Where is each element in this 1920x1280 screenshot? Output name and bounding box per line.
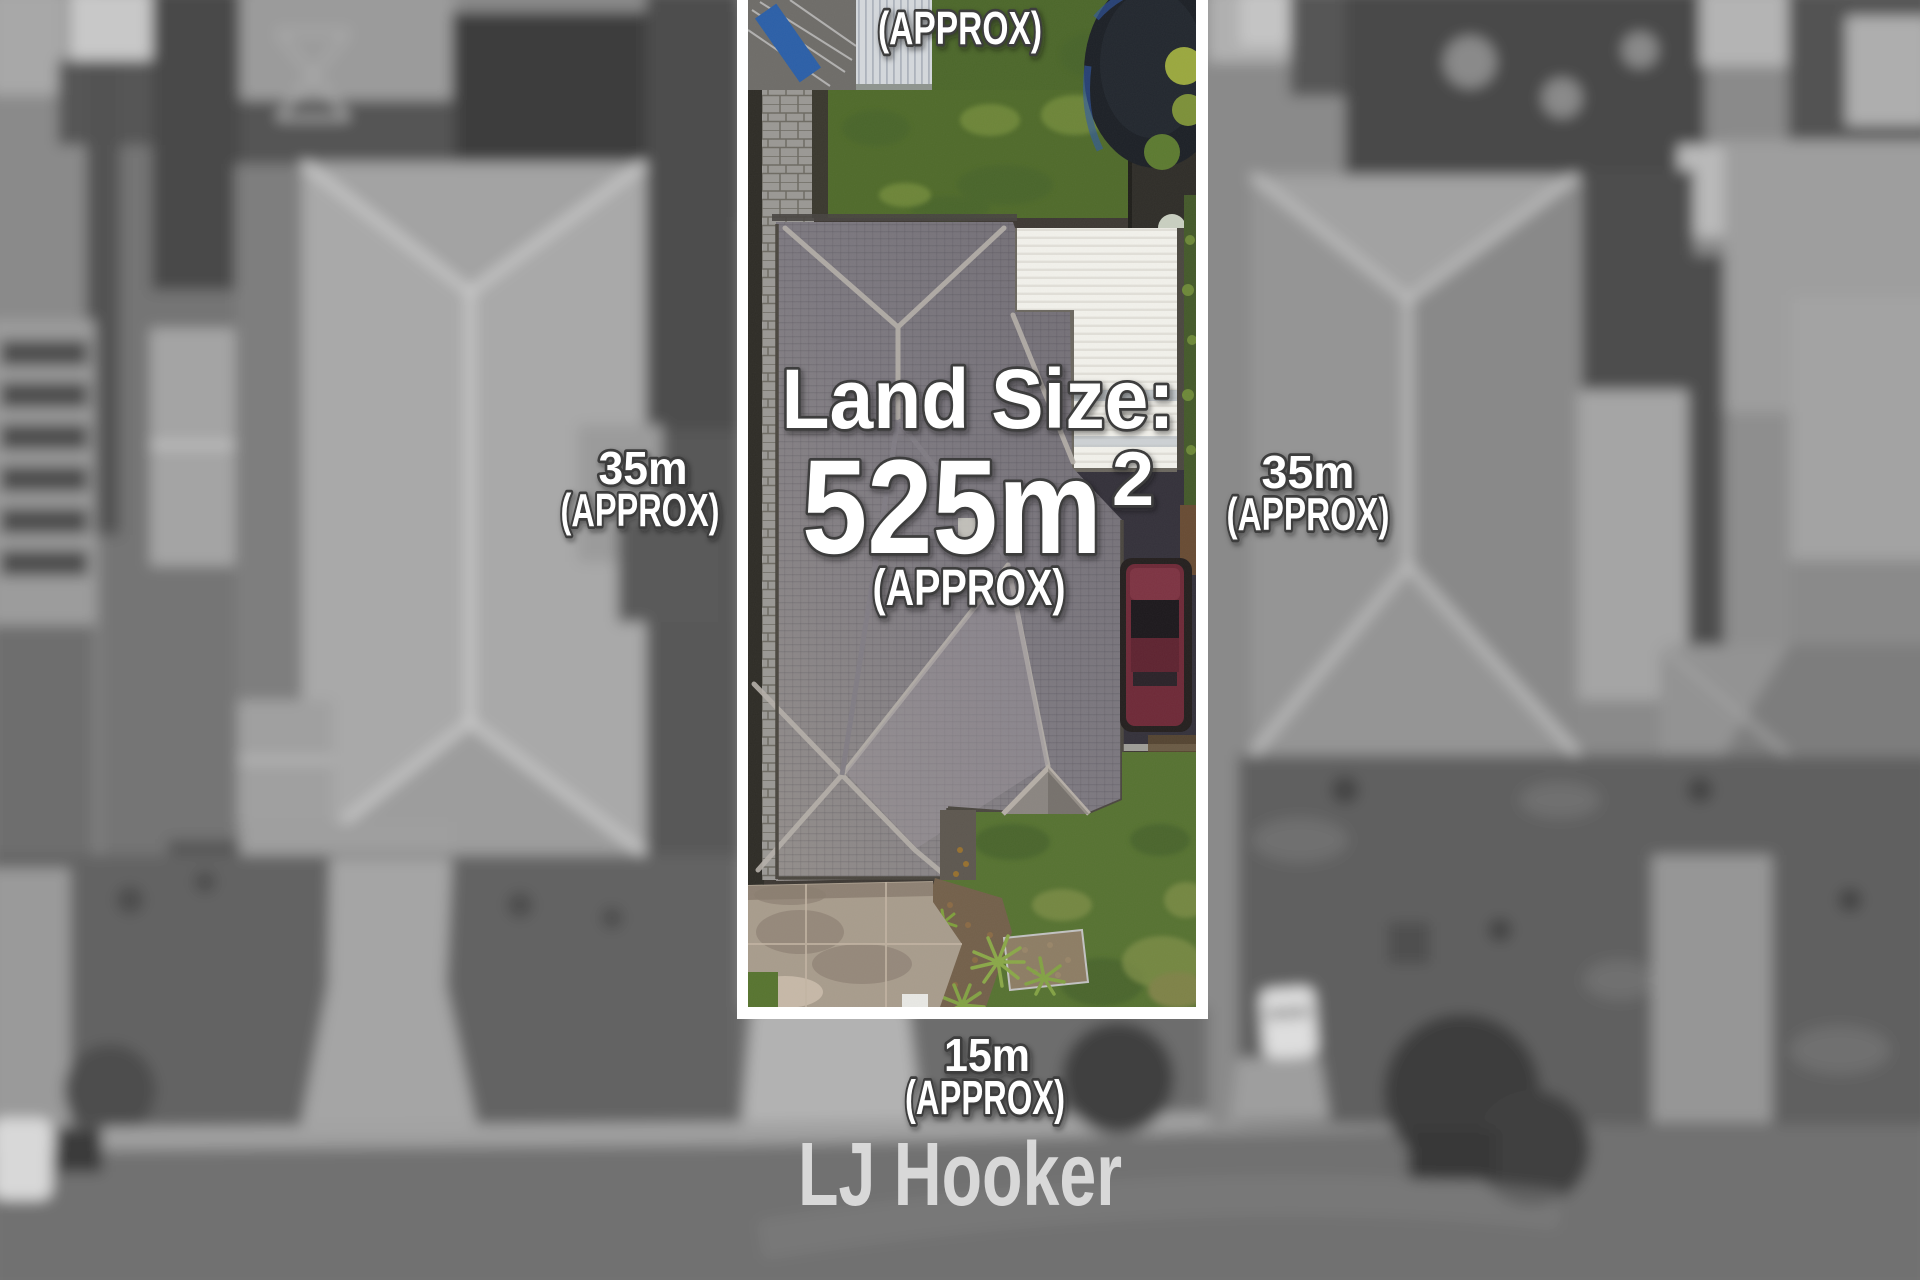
svg-text:(APPROX): (APPROX) <box>873 559 1066 616</box>
svg-text:(APPROX): (APPROX) <box>1227 488 1390 540</box>
svg-text:Land Size:: Land Size: <box>782 352 1175 446</box>
svg-text:(APPROX): (APPROX) <box>561 484 720 536</box>
svg-text:LJ Hooker: LJ Hooker <box>798 1125 1122 1225</box>
svg-text:(APPROX): (APPROX) <box>878 2 1042 54</box>
svg-text:2: 2 <box>1112 437 1154 522</box>
svg-text:(APPROX): (APPROX) <box>905 1072 1065 1125</box>
